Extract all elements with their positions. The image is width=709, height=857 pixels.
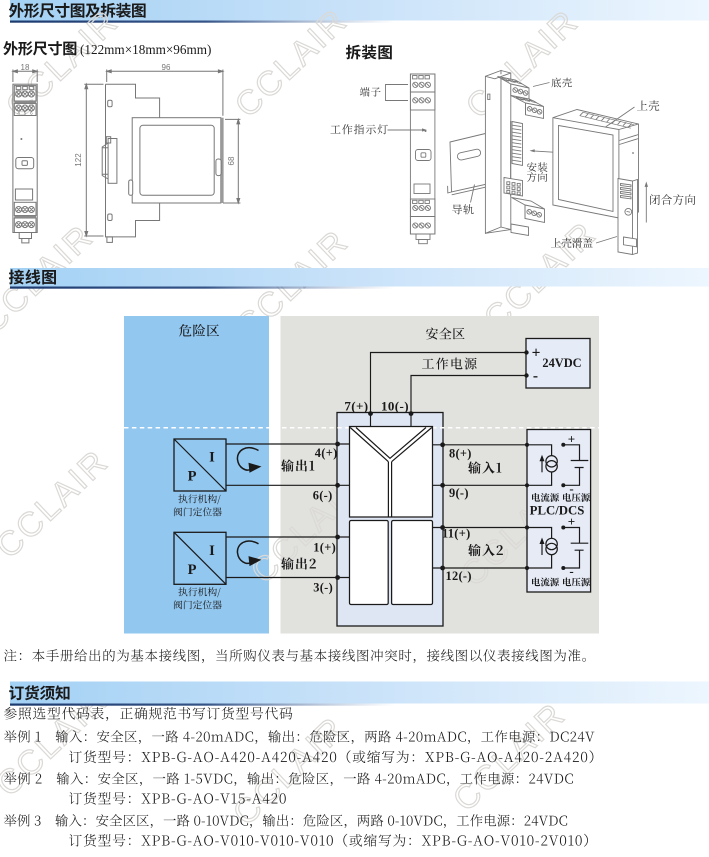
svg-text:(122mm×18mm×96mm): (122mm×18mm×96mm) (80, 42, 211, 57)
svg-text:8(+): 8(+) (449, 447, 472, 461)
svg-text:24VDC: 24VDC (542, 356, 581, 370)
svg-text:CCLAIR: CCLAIR (0, 442, 116, 566)
svg-text:+: + (568, 514, 575, 529)
svg-text:PLC/DCS: PLC/DCS (530, 504, 585, 518)
svg-text:-: - (533, 368, 538, 385)
svg-text:P: P (188, 562, 197, 578)
svg-text:3(-): 3(-) (313, 581, 333, 595)
svg-text:10(-): 10(-) (381, 399, 409, 414)
svg-text:-: - (569, 564, 573, 579)
svg-text:11(+): 11(+) (442, 527, 471, 541)
svg-text:CCLAIR: CCLAIR (226, 709, 353, 833)
svg-text:+: + (532, 345, 541, 362)
svg-text:CCLAIR: CCLAIR (446, 695, 573, 819)
svg-text:I: I (209, 450, 215, 466)
svg-text:1(+): 1(+) (313, 541, 336, 555)
svg-text:I: I (209, 543, 215, 559)
svg-text:-: - (569, 481, 573, 496)
svg-text:18: 18 (21, 63, 30, 72)
svg-text:9(-): 9(-) (449, 486, 469, 500)
svg-text:7(+): 7(+) (344, 399, 368, 414)
svg-text:96: 96 (162, 63, 171, 72)
svg-text:6(-): 6(-) (313, 489, 333, 503)
svg-text:68: 68 (227, 156, 236, 165)
svg-text:12(-): 12(-) (446, 569, 472, 583)
svg-text:122: 122 (74, 153, 83, 167)
svg-text:P: P (188, 469, 197, 485)
svg-text:+: + (568, 431, 575, 446)
svg-text:4(+): 4(+) (315, 446, 338, 460)
